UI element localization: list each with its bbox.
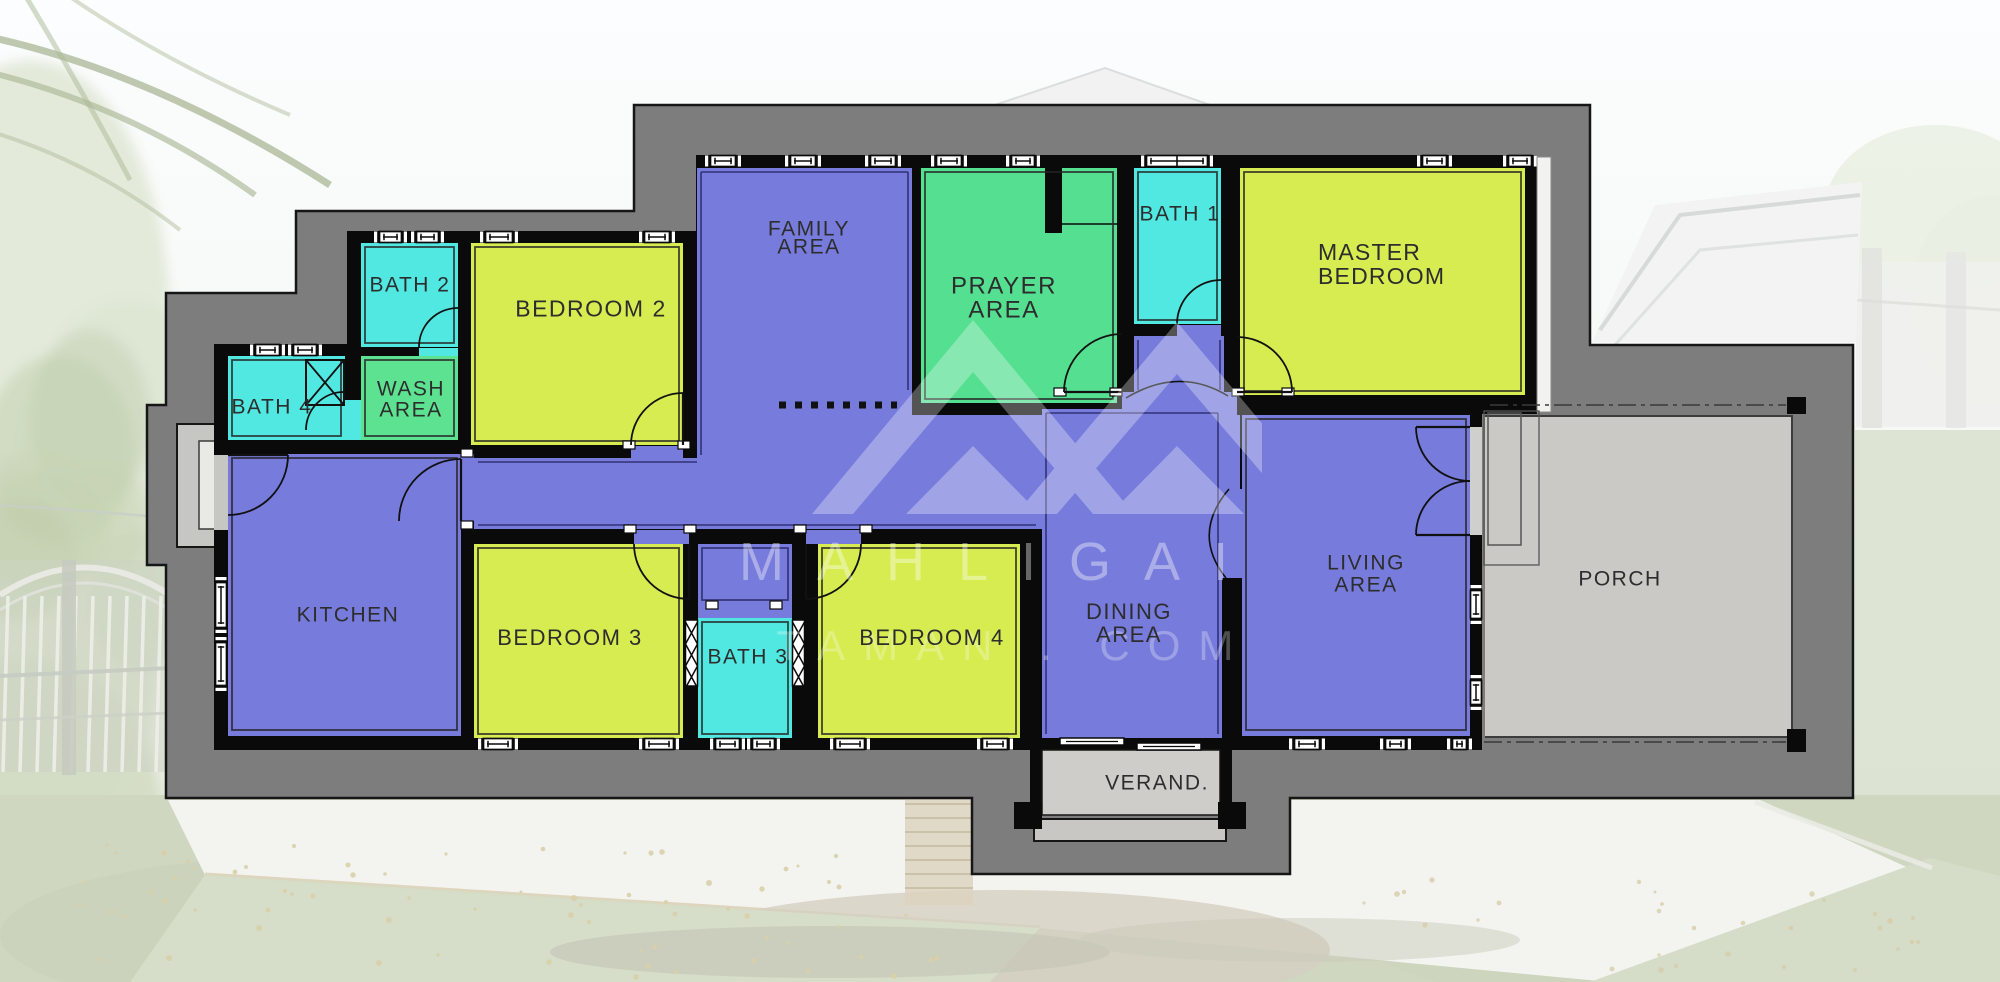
svg-text:BATH 3: BATH 3 xyxy=(708,646,789,669)
svg-text:BATH 4: BATH 4 xyxy=(232,396,313,419)
svg-text:BATH 2: BATH 2 xyxy=(370,274,451,297)
svg-text:BEDROOM 2: BEDROOM 2 xyxy=(515,295,667,321)
svg-text:BEDROOM: BEDROOM xyxy=(1318,263,1445,289)
svg-text:BEDROOM 4: BEDROOM 4 xyxy=(859,625,1005,650)
svg-text:LIVING: LIVING xyxy=(1327,552,1405,575)
svg-text:AREA: AREA xyxy=(968,297,1039,324)
svg-text:BEDROOM 3: BEDROOM 3 xyxy=(497,625,643,650)
svg-text:MASTER: MASTER xyxy=(1318,239,1421,265)
svg-text:WASH: WASH xyxy=(377,378,445,401)
svg-text:BATH 1: BATH 1 xyxy=(1140,203,1221,226)
svg-text:PORCH: PORCH xyxy=(1578,568,1661,591)
svg-text:DINING: DINING xyxy=(1086,599,1172,624)
svg-text:AREA: AREA xyxy=(777,236,840,259)
svg-text:AREA: AREA xyxy=(379,399,442,422)
svg-text:AREA: AREA xyxy=(1334,574,1397,597)
svg-text:KITCHEN: KITCHEN xyxy=(297,604,400,627)
svg-text:PRAYER: PRAYER xyxy=(951,273,1057,300)
svg-text:AREA: AREA xyxy=(1096,622,1162,647)
svg-text:MAHLIGAI: MAHLIGAI xyxy=(739,532,1261,592)
svg-text:TAMAN . COM: TAMAN . COM xyxy=(777,622,1252,669)
svg-text:VERAND.: VERAND. xyxy=(1105,772,1209,795)
